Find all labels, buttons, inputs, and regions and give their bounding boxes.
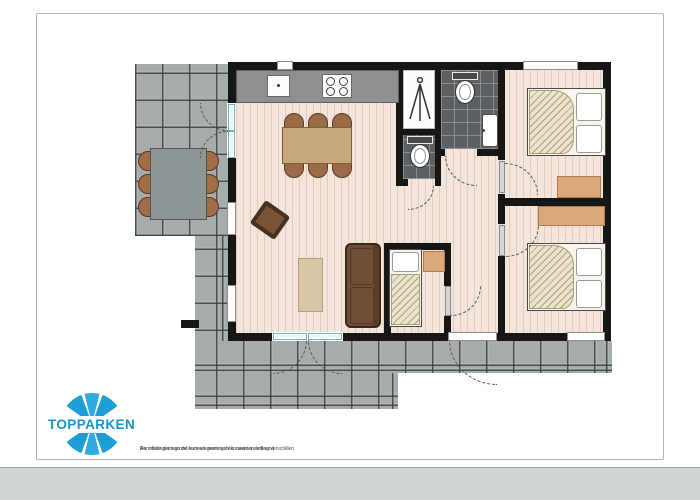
topparken-logo: TOPPARKEN [40,390,150,458]
window-left-2 [227,285,236,322]
double-bed-2-duvet [529,245,574,309]
pillow [392,252,419,272]
toilet-bowl [410,144,430,168]
terrace-door-bottom-leaf [308,333,342,340]
washbasin [482,114,498,147]
pillow [576,125,602,153]
sofa [345,243,381,328]
toilet-bathroom [452,72,478,104]
toilet-wc [407,136,433,168]
window-left-1 [227,202,236,235]
pillow [576,280,602,308]
wall-bath-bottom-l [435,149,445,156]
floorplan-page: TOPPARKEN Aan deze plattegrond kunnen ge… [0,0,700,500]
shower-floor [403,70,435,129]
terrace-door-left-leaf [228,131,235,158]
rug-cabinet [298,258,323,312]
window-bedroom-2 [567,332,605,341]
wall-hall-right-lower [498,256,505,333]
toilet-tank [407,136,433,144]
wall-stub-terrace [181,320,199,328]
pillow [576,248,602,276]
wardrobe-bedroom-1 [557,176,601,198]
wall-bedroom-divider [498,198,611,206]
wall-hall-right-upper [498,62,505,160]
single-bed-duvet [391,274,420,325]
wall-wc-bottom-l [396,179,408,186]
outdoor-table [150,148,207,220]
terrace-door-bottom-leaf [273,333,307,340]
terrace-bottom-lower [195,373,398,409]
nightstand [423,251,445,272]
disclaimer-part2: De indelingen van de recreatiewoningen k… [140,446,294,452]
wall-smallbed-right-b [444,316,451,333]
dining-chair [308,113,328,128]
shower-icon [406,75,434,125]
wardrobe-bedroom-2 [538,206,605,226]
bottom-band [0,467,700,500]
wall-smallbed-right-a [444,250,451,286]
window-bedroom-1 [523,61,578,70]
double-bed-1-duvet [529,90,574,154]
dining-table [282,127,352,164]
terrace-left-strip [195,236,228,341]
kitchen-sink [267,75,290,97]
window-kitchen [277,61,293,70]
stove [322,74,352,98]
dining-chair [284,113,304,128]
kitchen-counter [236,70,399,103]
topparken-logo-text: TOPPARKEN [45,416,138,433]
terrace-door-left-leaf [228,104,235,131]
disclaimer-line: Aan deze plattegrond kunnen geen rechten… [140,444,436,454]
toilet-tank [452,72,478,80]
dining-chair [332,113,352,128]
pillow [576,93,602,121]
toilet-bowl [455,80,475,104]
terrace-bottom [195,341,612,373]
